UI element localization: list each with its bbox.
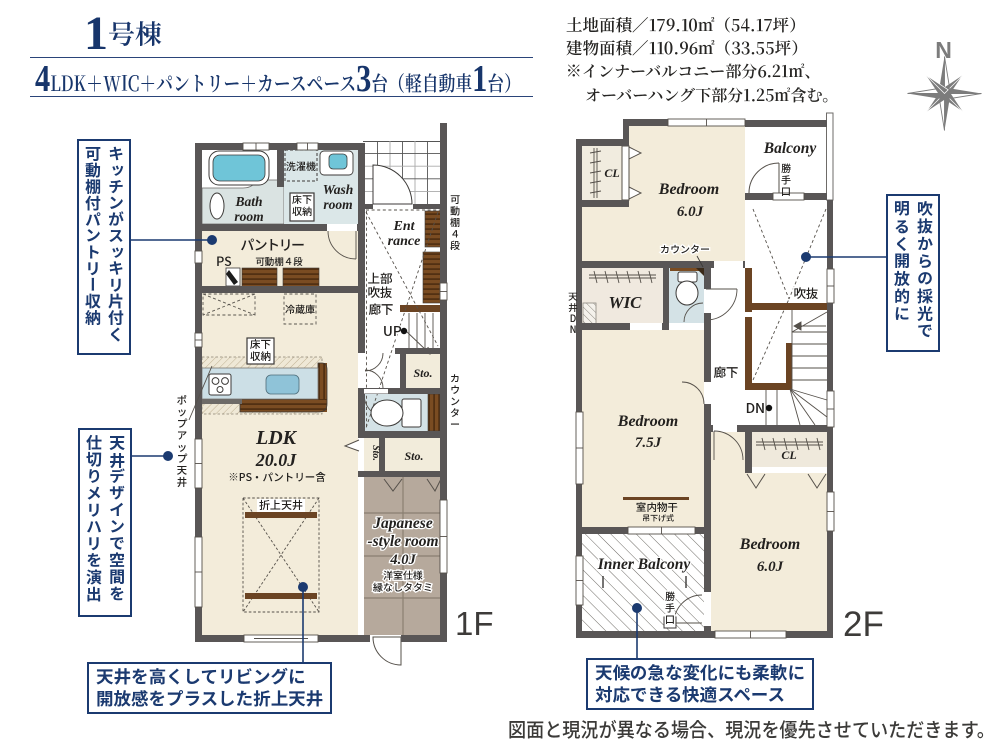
svg-text:CL: CL [604, 166, 619, 180]
svg-text:パントリー: パントリー [240, 235, 304, 255]
svg-text:2F: 2F [843, 605, 884, 644]
svg-text:UP: UP [383, 320, 402, 340]
svg-text:6.0J: 6.0J [677, 204, 704, 220]
svg-text:可動棚４段: 可動棚４段 [449, 191, 461, 252]
svg-text:Bedroom: Bedroom [617, 413, 678, 430]
svg-text:※PS・パントリー含: ※PS・パントリー含 [228, 470, 326, 485]
svg-text:Inner Balcony: Inner Balcony [597, 556, 691, 573]
svg-text:洗濯機: 洗濯機 [286, 158, 316, 173]
svg-text:Wash: Wash [323, 182, 354, 197]
svg-text:DN: DN [745, 397, 764, 417]
svg-text:room: room [323, 197, 352, 212]
svg-text:20.0J: 20.0J [255, 450, 298, 470]
svg-text:Sto.: Sto. [413, 366, 432, 380]
svg-text:LDK: LDK [255, 427, 298, 449]
svg-text:WIC: WIC [608, 293, 642, 312]
svg-text:収納: 収納 [292, 203, 312, 218]
svg-text:6.0J: 6.0J [757, 559, 784, 575]
svg-text:カウンター: カウンター [660, 241, 710, 256]
svg-text:N: N [935, 37, 952, 63]
svg-text:7.5J: 7.5J [635, 435, 662, 451]
svg-text:勝手口: 勝手口 [781, 160, 792, 198]
svg-text:可動棚４段: 可動棚４段 [255, 254, 303, 268]
svg-text:PS: PS [216, 251, 232, 270]
svg-text:Sto.: Sto. [404, 449, 423, 463]
svg-text:rance: rance [388, 234, 421, 249]
svg-text:廊下: 廊下 [713, 362, 738, 381]
svg-text:廊下: 廊下 [368, 299, 393, 318]
svg-text:縁なしタタミ: 縁なしタタミ [373, 579, 433, 594]
svg-text:吊下げ式: 吊下げ式 [642, 513, 674, 524]
svg-text:Bedroom: Bedroom [739, 536, 800, 553]
svg-text:-style room: -style room [367, 533, 438, 550]
svg-text:Balcony: Balcony [763, 140, 817, 157]
svg-text:room: room [234, 209, 263, 224]
svg-text:4.0J: 4.0J [389, 552, 416, 568]
svg-text:折上天井: 折上天井 [259, 497, 303, 513]
svg-text:Bedroom: Bedroom [658, 181, 719, 198]
svg-text:Japanese: Japanese [372, 515, 433, 532]
svg-text:冷蔵庫: 冷蔵庫 [285, 301, 315, 316]
svg-text:CL: CL [781, 448, 796, 462]
svg-text:Bath: Bath [234, 194, 262, 209]
svg-text:収納: 収納 [250, 349, 271, 364]
svg-text:1F: 1F [455, 605, 494, 642]
svg-text:カウンター: カウンター [450, 370, 460, 431]
svg-text:Sto.: Sto. [370, 445, 381, 461]
svg-text:ポップアップ天井: ポップアップ天井 [177, 393, 188, 490]
svg-text:勝手口: 勝手口 [665, 588, 676, 626]
svg-text:吹抜: 吹抜 [793, 283, 818, 302]
svg-text:Ent: Ent [392, 219, 415, 234]
